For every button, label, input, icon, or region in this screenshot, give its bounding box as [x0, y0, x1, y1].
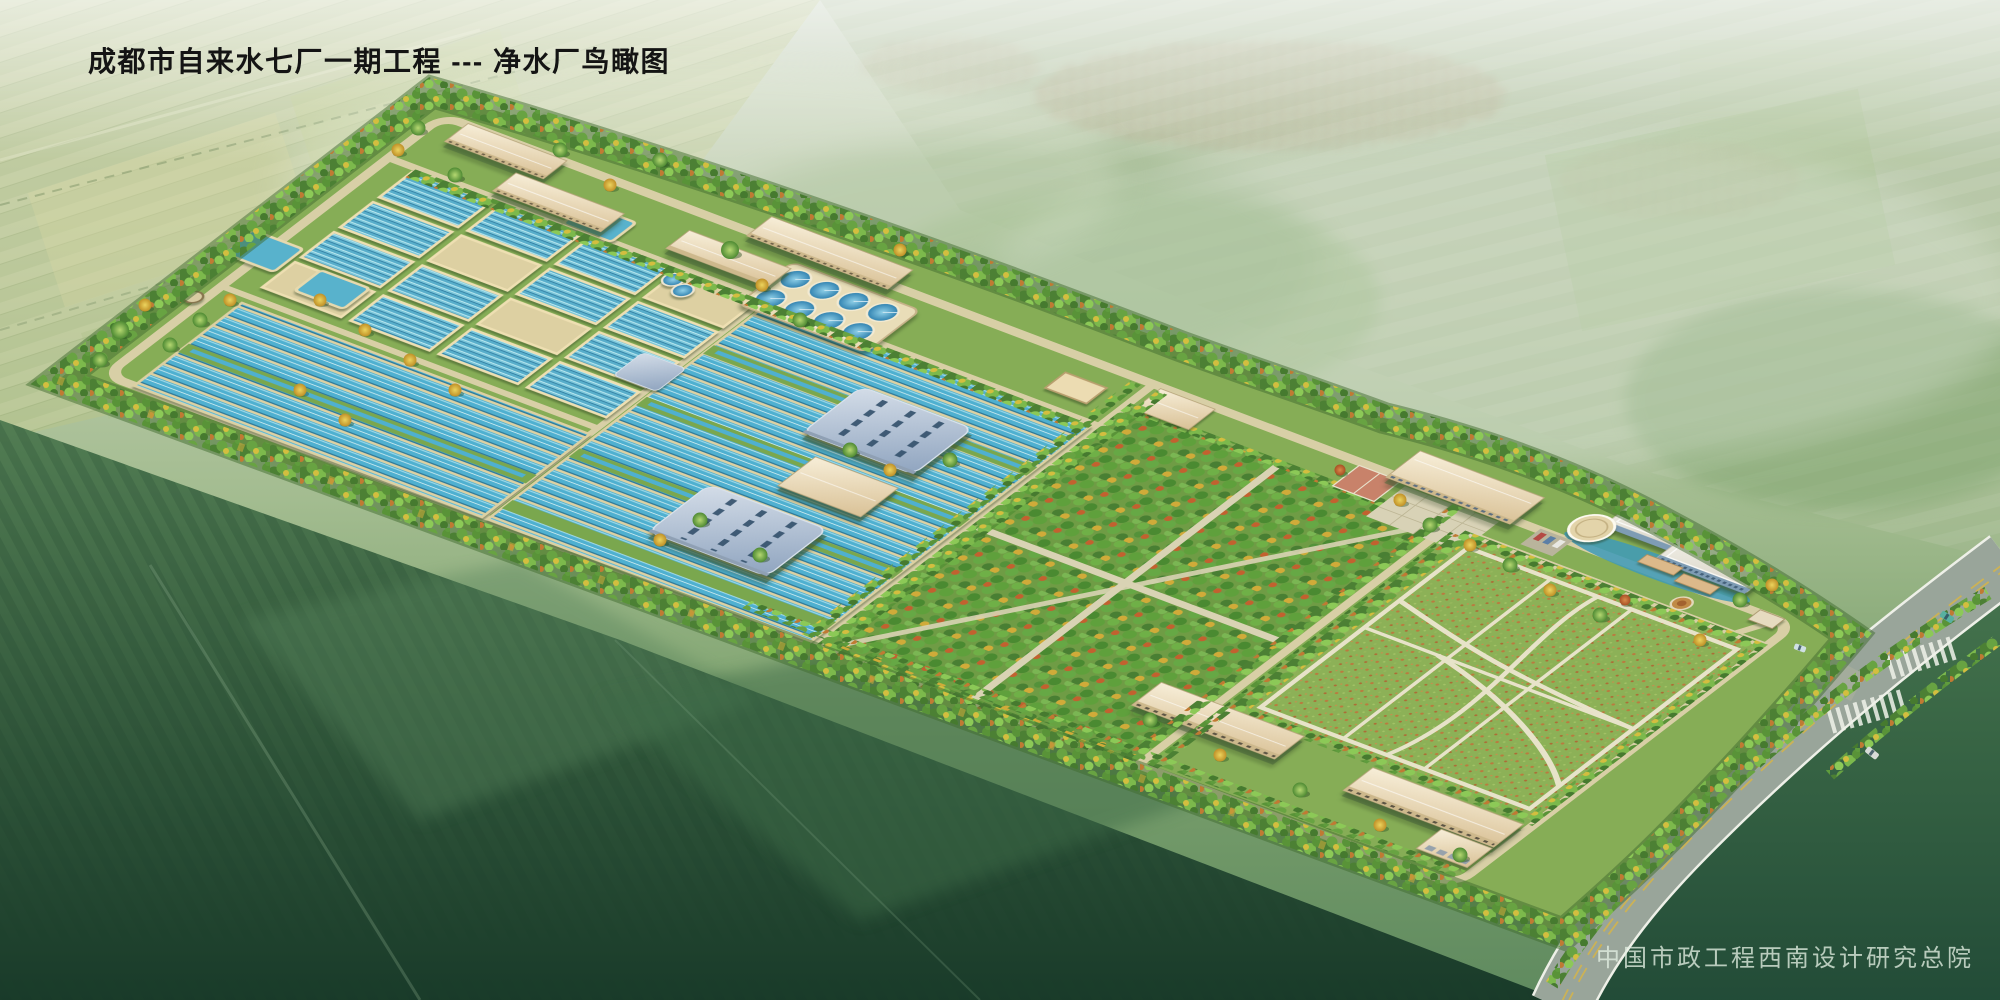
aerial-rendering [0, 0, 2000, 1000]
page-title: 成都市自来水七厂一期工程 --- 净水厂鸟瞰图 [88, 40, 670, 80]
watermark: 中国市政工程西南设计研究总院 [1596, 938, 1974, 973]
rendering-canvas: 成都市自来水七厂一期工程 --- 净水厂鸟瞰图 中国市政工程西南设计研究总院 [0, 0, 2000, 1000]
